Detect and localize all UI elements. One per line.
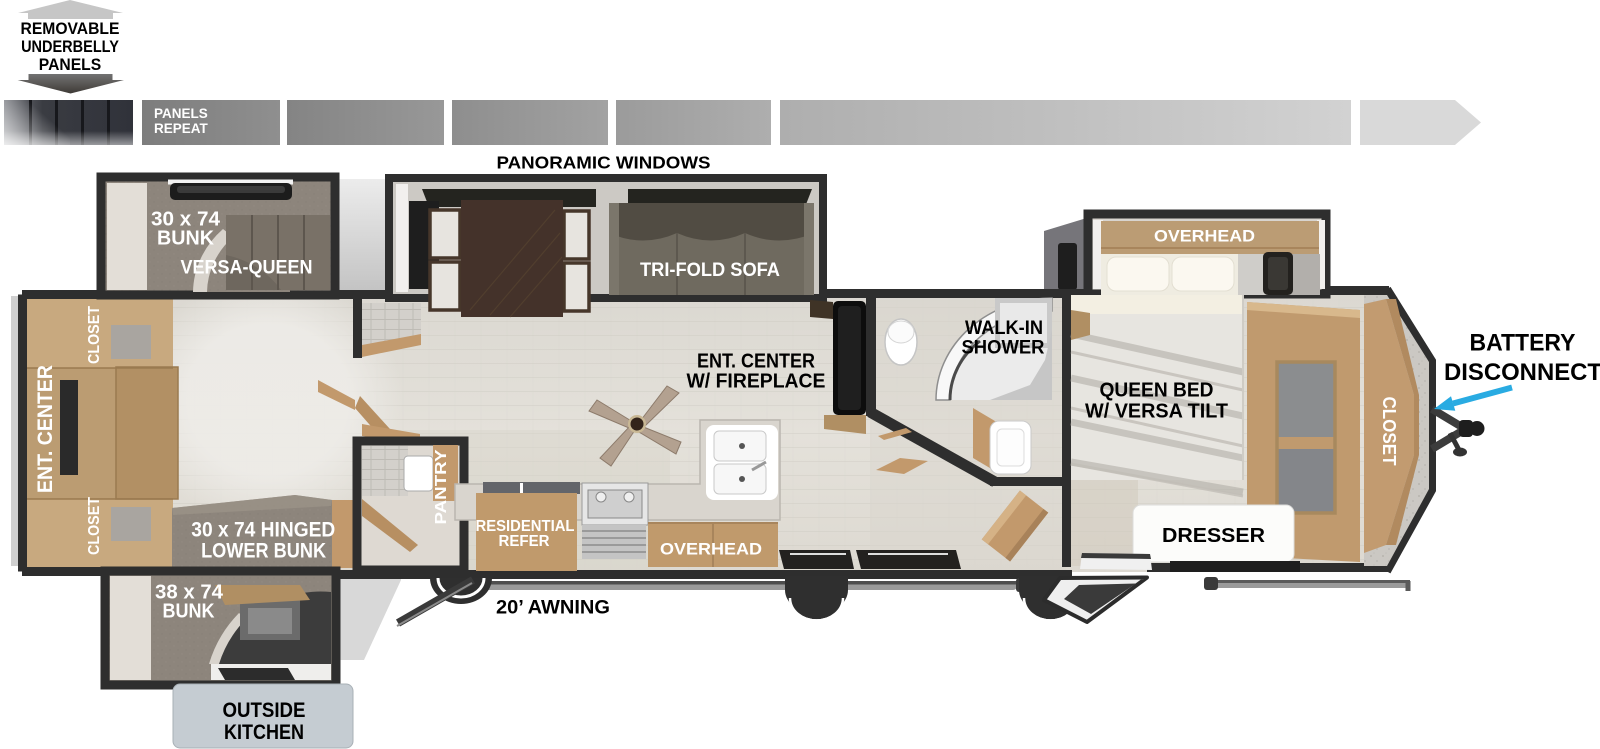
svg-text:OVERHEAD: OVERHEAD	[1154, 227, 1255, 246]
svg-text:PANELS: PANELS	[39, 56, 102, 74]
svg-text:REMOVABLE: REMOVABLE	[21, 20, 120, 38]
svg-text:KITCHEN: KITCHEN	[224, 721, 304, 744]
svg-text:DISCONNECT: DISCONNECT	[1444, 359, 1600, 386]
svg-text:TRI-FOLD SOFA: TRI-FOLD SOFA	[640, 260, 780, 281]
svg-text:CLOSET: CLOSET	[1379, 397, 1399, 466]
svg-text:ENT. CENTER: ENT. CENTER	[697, 351, 815, 373]
svg-text:OUTSIDE: OUTSIDE	[223, 699, 306, 722]
svg-text:VERSA-QUEEN: VERSA-QUEEN	[181, 258, 313, 279]
svg-text:PANTRY: PANTRY	[433, 449, 450, 524]
svg-text:ENT. CENTER: ENT. CENTER	[34, 365, 57, 493]
svg-text:PANELS: PANELS	[154, 106, 208, 121]
svg-text:REFER: REFER	[499, 533, 550, 550]
svg-text:UNDERBELLY: UNDERBELLY	[21, 38, 119, 56]
svg-text:WALK-IN: WALK-IN	[965, 318, 1043, 339]
svg-text:20’ AWNING: 20’ AWNING	[496, 598, 610, 619]
svg-text:CLOSET: CLOSET	[86, 306, 103, 364]
svg-text:SHOWER: SHOWER	[962, 338, 1045, 359]
svg-text:QUEEN BED: QUEEN BED	[1100, 380, 1214, 402]
svg-text:BUNK: BUNK	[157, 228, 215, 250]
svg-text:W/ VERSA TILT: W/ VERSA TILT	[1085, 401, 1228, 423]
svg-text:REPEAT: REPEAT	[154, 121, 209, 136]
svg-text:30 x 74 HINGED: 30 x 74 HINGED	[191, 518, 335, 541]
svg-text:DRESSER: DRESSER	[1162, 525, 1266, 547]
svg-text:LOWER BUNK: LOWER BUNK	[201, 540, 326, 563]
svg-text:CLOSET: CLOSET	[86, 497, 103, 555]
svg-text:PANORAMIC WINDOWS: PANORAMIC WINDOWS	[497, 153, 711, 173]
svg-text:W/ FIREPLACE: W/ FIREPLACE	[687, 371, 826, 393]
svg-text:BATTERY: BATTERY	[1470, 330, 1576, 357]
svg-text:BUNK: BUNK	[163, 601, 215, 623]
svg-text:OVERHEAD: OVERHEAD	[660, 540, 762, 559]
